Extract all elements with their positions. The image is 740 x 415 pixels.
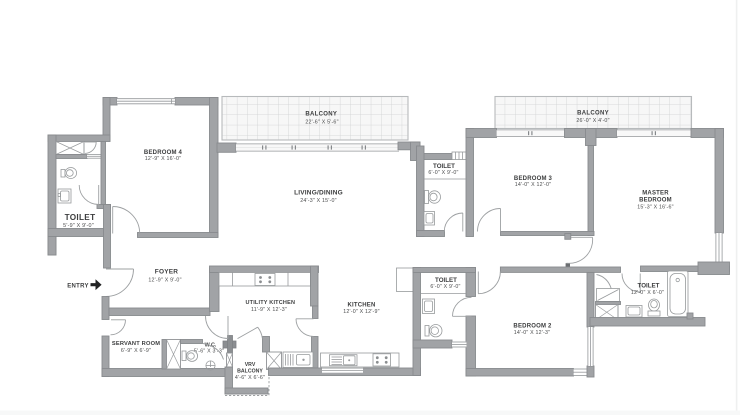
svg-text:MASTER: MASTER (642, 190, 669, 196)
svg-text:6'-0" X 9'-0": 6'-0" X 9'-0" (430, 284, 460, 290)
svg-text:14'-0" X 12'-3": 14'-0" X 12'-3" (514, 330, 550, 336)
svg-text:FOYER: FOYER (155, 269, 178, 276)
svg-text:12'-0" X 12'-9": 12'-0" X 12'-9" (343, 309, 379, 315)
svg-text:KITCHEN: KITCHEN (347, 302, 375, 308)
svg-text:LIVING/DINING: LIVING/DINING (294, 189, 343, 196)
svg-text:ENTRY: ENTRY (67, 283, 89, 289)
svg-text:6'-9" X 6'-9": 6'-9" X 6'-9" (121, 348, 151, 354)
svg-text:14'-0" X 12'-0": 14'-0" X 12'-0" (515, 182, 551, 188)
svg-text:12'-9" X 9'-0": 12'-9" X 9'-0" (148, 278, 181, 284)
svg-text:12'-9" X 16'-0": 12'-9" X 16'-0" (145, 156, 181, 162)
svg-text:TOILET: TOILET (435, 277, 457, 284)
svg-text:11'-9" X 12'-3": 11'-9" X 12'-3" (251, 307, 287, 313)
svg-text:BALCONY: BALCONY (237, 369, 263, 375)
svg-text:24'-3" X 15'-0": 24'-3" X 15'-0" (300, 198, 336, 204)
svg-text:15'-3" X 16'-6": 15'-3" X 16'-6" (637, 204, 673, 210)
svg-text:BEDROOM 3: BEDROOM 3 (514, 176, 553, 182)
svg-text:BEDROOM: BEDROOM (639, 197, 672, 203)
svg-text:BALCONY: BALCONY (305, 112, 337, 118)
svg-text:TOILET: TOILET (638, 282, 660, 289)
svg-text:TOILET: TOILET (433, 163, 455, 170)
svg-text:BALCONY: BALCONY (577, 110, 609, 116)
svg-text:22'-6" X 5'-6": 22'-6" X 5'-6" (305, 119, 338, 125)
svg-text:12'-0" X 6'-0": 12'-0" X 6'-0" (631, 290, 664, 296)
svg-text:VRV: VRV (245, 362, 256, 368)
svg-text:TOILET: TOILET (65, 213, 96, 222)
svg-text:26'-0" X 4'-0": 26'-0" X 4'-0" (576, 118, 609, 124)
svg-text:6'-0" X 9'-0": 6'-0" X 9'-0" (428, 170, 458, 176)
svg-text:SERVANT ROOM: SERVANT ROOM (112, 341, 160, 347)
svg-text:BEDROOM 4: BEDROOM 4 (144, 150, 183, 156)
svg-text:BEDROOM 2: BEDROOM 2 (513, 323, 552, 329)
svg-text:4'-6" X 6'-6": 4'-6" X 6'-6" (235, 375, 265, 381)
svg-text:UTILITY KITCHEN: UTILITY KITCHEN (245, 300, 295, 306)
